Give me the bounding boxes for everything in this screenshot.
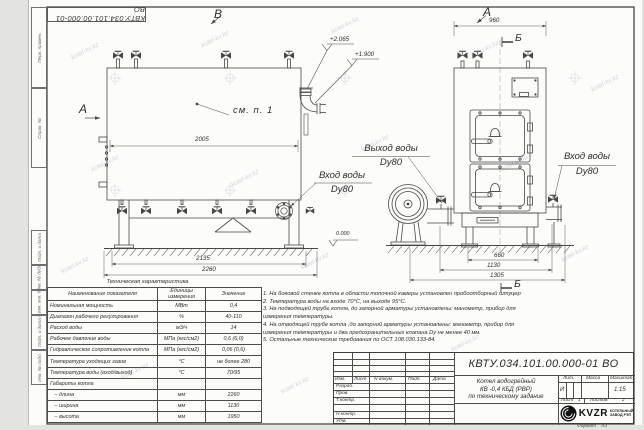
valve-icon xyxy=(131,51,141,58)
title-line: Котел водогрейный xyxy=(454,378,558,386)
table-row: Расход водым3/ч14 xyxy=(48,323,262,334)
cell: МПа (кгс/см2) xyxy=(158,334,206,345)
inlet-dn-right-label: Dy80 xyxy=(555,167,619,177)
table-row: Номинальная мощностьМВт0,4 xyxy=(48,301,262,312)
boiler-drawing-page: { "watermark": {"text": "kotel-kv.kz"}, … xyxy=(0,0,644,430)
elevation-2065: +2.065 xyxy=(330,37,349,43)
valve-icon xyxy=(284,51,294,58)
cell: Гидравлическое сопротивление котла xyxy=(48,345,158,356)
outlet-elbow xyxy=(299,88,326,135)
cell: Номинальная мощность xyxy=(48,301,158,312)
format-word: Формат xyxy=(577,424,596,429)
valve-icon xyxy=(523,51,533,58)
note-line: 5. Остальные технические требования по О… xyxy=(263,337,635,345)
valve-icon xyxy=(212,207,222,214)
table-row: Диапазон рабочего регулирования%40-110 xyxy=(48,312,262,323)
cell xyxy=(206,378,262,389)
valve-icon xyxy=(117,207,127,214)
cell: – высота xyxy=(48,411,158,422)
stamp-inv-dubl: Инв. № дубл. xyxy=(31,265,47,290)
drawing-title: Котел водогрейный КВ -0,4 КБД (РВР) по т… xyxy=(454,378,558,403)
cell: % xyxy=(158,312,206,323)
cell: мм xyxy=(158,389,206,400)
outlet-pipe xyxy=(427,204,454,226)
cell: 14 xyxy=(206,323,262,334)
logo-spiral-icon xyxy=(560,405,577,422)
upper-door xyxy=(470,110,533,162)
table-row: Температура уходящих газов°Сне более 280 xyxy=(48,356,262,367)
outlet-dn-label: Dy80 xyxy=(352,158,430,168)
cell: 70/95 xyxy=(206,367,262,378)
company-logo: KVZR КОТЕЛЬНЫЙ ЗАВОД РЭП xyxy=(558,403,635,423)
note-line: измерения температуры. xyxy=(263,314,635,322)
cell: – длина xyxy=(48,389,158,400)
right-view-boiler-front xyxy=(386,21,574,293)
table-row: Рабочее давление водыМПа (кгс/см2)0,6 (6… xyxy=(48,334,262,345)
col-header: Единицы измерения xyxy=(158,288,206,301)
table-row: Гидравлическое сопротивление котлаМПа (к… xyxy=(48,345,262,356)
sign-tkontr: Т.контр. xyxy=(336,399,355,404)
inlet-flange xyxy=(276,203,293,220)
rotated-doc-number: КВТУ.034.101.00.000-01 ВО xyxy=(47,7,146,22)
valve-icon xyxy=(473,51,483,58)
cell: 1950 xyxy=(206,411,262,422)
title-block: Изм. Лист N докум. Подп. Дата Разраб. Пр… xyxy=(333,352,634,424)
valve-icon xyxy=(548,195,558,202)
lit-value: И xyxy=(560,387,564,393)
table-row: – высотамм1950 xyxy=(48,411,262,422)
stamp-inv-podl: Инв. № подл. xyxy=(31,350,47,385)
doc-number: КВТУ.034.101.00.000-01 ВО xyxy=(454,353,633,375)
cell: Температура воды (вход/выход) xyxy=(48,367,158,378)
title-line: по техническому задание xyxy=(454,393,558,401)
rev-col-podp: Подп. xyxy=(408,378,421,383)
inlet-water-right-label: Вход воды xyxy=(555,152,619,162)
lit-label: Лит. xyxy=(563,377,574,382)
valve-icon xyxy=(436,196,446,203)
panel-box xyxy=(512,78,538,97)
company-subtitle: КОТЕЛЬНЫЙ ЗАВОД РЭП xyxy=(610,409,633,417)
cell: Габариты котла xyxy=(48,378,158,389)
table-row: Габариты котла xyxy=(48,378,262,389)
mass-label: Масса xyxy=(586,377,600,382)
valve-icon xyxy=(113,51,123,58)
rev-col-data: Дата xyxy=(433,378,446,383)
blower-fan-icon xyxy=(389,185,428,246)
cell: °С xyxy=(158,356,206,367)
inlet-pipe xyxy=(546,203,562,247)
company-sub-line: ЗАВОД РЭП xyxy=(610,413,633,417)
spec-table: Наименование показателя Единицы измерени… xyxy=(47,287,262,423)
table-row: – длинамм2260 xyxy=(48,389,262,400)
cell: Расход воды xyxy=(48,323,158,334)
section-b-top-label: Б xyxy=(515,33,522,44)
company-name: KVZR xyxy=(579,408,608,419)
col-header: Наименование показателя xyxy=(48,288,158,301)
view-arrows xyxy=(85,16,486,119)
dim-660: 660 xyxy=(492,253,506,259)
valve-icon xyxy=(221,51,231,58)
col-header: Значение xyxy=(206,288,262,301)
left-view-boiler-side xyxy=(99,44,379,278)
dim-2135: 2135 xyxy=(194,256,212,262)
dim-2260: 2260 xyxy=(200,267,218,273)
valve-icon xyxy=(177,207,187,214)
see-item-note: см. п. 1 xyxy=(233,106,273,116)
cell: 0,4 xyxy=(206,301,262,312)
sign-razrab: Разраб. xyxy=(336,385,353,390)
cell: 40-110 xyxy=(206,312,262,323)
table-header-row: Наименование показателя Единицы измерени… xyxy=(48,288,262,301)
inlet-dn-left-label: Dy80 xyxy=(310,185,374,195)
cell: 1130 xyxy=(206,400,262,411)
note-line: 3. На подводящей трубе котла, до запорно… xyxy=(263,306,635,314)
valve-icon xyxy=(141,207,151,214)
cell: Температура уходящих газов xyxy=(48,356,158,367)
cell: Рабочее давление воды xyxy=(48,334,158,345)
outlet-water-label: Выход воды xyxy=(352,144,430,154)
note-line: 1. На боковой стенке котла в области топ… xyxy=(263,291,635,299)
table-row: – ширинамм1130 xyxy=(48,400,262,411)
technical-notes: 1. На боковой стенке котла в области топ… xyxy=(263,291,635,345)
stamp-label: Подп. и дата xyxy=(37,318,42,347)
cell: МПа (кгс/см2) xyxy=(158,345,206,356)
cell: мм xyxy=(158,411,206,422)
stamp-label: Инв. № подл. xyxy=(37,353,42,382)
valve-icon xyxy=(458,51,468,58)
table-row: Температура воды (вход/выход)°С70/95 xyxy=(48,367,262,378)
view-b-label: В xyxy=(214,8,222,20)
sign-prov: Пров. xyxy=(336,392,349,397)
valve-icon xyxy=(246,207,256,214)
label-leaders xyxy=(291,157,616,207)
section-b-bottom-label: Б xyxy=(514,279,521,290)
stamp-label: Справ. № xyxy=(37,118,42,139)
cell: мм xyxy=(158,400,206,411)
spec-table-title: Техническая характеристика xyxy=(47,279,248,285)
rev-col-list: Лист xyxy=(354,378,366,383)
note-line: измерения температуры и два предохраните… xyxy=(263,330,635,338)
dim-960: 960 xyxy=(487,18,501,24)
cell: °С xyxy=(158,367,206,378)
cell: Диапазон рабочего регулирования xyxy=(48,312,158,323)
title-line: КВ -0,4 КБД (РВР) xyxy=(454,386,558,394)
valve-icon xyxy=(306,207,315,213)
lower-door xyxy=(470,164,533,211)
cell xyxy=(158,378,206,389)
view-a-arrow-label: А xyxy=(79,103,87,115)
inlet-water-left-label: Вход воды xyxy=(310,171,374,181)
format-value: А3 xyxy=(601,424,607,429)
elevation-zero: 0.000 xyxy=(336,232,350,237)
elevation-1900: +1.900 xyxy=(355,52,374,58)
stamp-label: Перв. примен. xyxy=(37,32,42,63)
stamp-podp-data-1: Подп. и дата xyxy=(31,230,47,265)
cell: – ширина xyxy=(48,400,158,411)
scale-value: 1:15 xyxy=(614,387,626,393)
dim-2005: 2005 xyxy=(193,137,211,143)
stamp-perv-primen: Перв. примен. xyxy=(31,7,47,88)
rev-col-ndoc: N докум. xyxy=(374,378,393,383)
dim-1305: 1305 xyxy=(488,273,506,279)
stamp-label: Взам. инв. № xyxy=(37,288,42,316)
sign-utv: Утв. xyxy=(336,420,347,425)
dim-1130: 1130 xyxy=(485,263,502,269)
stamp-label: Подп. и дата xyxy=(37,233,42,262)
format-label: Формат А3 xyxy=(577,424,637,429)
cell: 0,6 (6,0) xyxy=(206,334,262,345)
rev-col-izm: Изм. xyxy=(335,378,345,383)
sign-nkontr: Н.контр. xyxy=(336,413,356,418)
cell: не более 280 xyxy=(206,356,262,367)
stamp-vzam-inv: Взам. инв. № xyxy=(31,290,47,315)
cell: м3/ч xyxy=(158,323,206,334)
cell: 2260 xyxy=(206,389,262,400)
note-line: 4. На отводящей трубе котла ,до запорной… xyxy=(263,322,635,330)
stamp-sprav-no: Справ. № xyxy=(31,88,47,168)
cell: 0,06 (0,6) xyxy=(206,345,262,356)
stamp-podp-data-2: Подп. и дата xyxy=(31,315,47,350)
scale-label: Масштаб xyxy=(610,377,632,382)
cell: МВт xyxy=(158,301,206,312)
